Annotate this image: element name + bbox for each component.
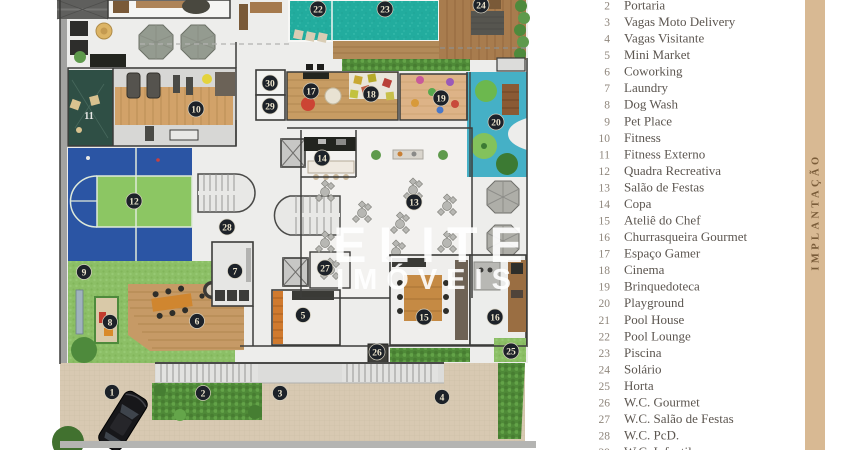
svg-text:Ateliê do Chef: Ateliê do Chef bbox=[624, 213, 701, 228]
svg-text:12: 12 bbox=[129, 197, 139, 207]
svg-text:3: 3 bbox=[604, 17, 610, 29]
svg-text:Cinema: Cinema bbox=[624, 262, 665, 277]
svg-text:20: 20 bbox=[599, 298, 611, 310]
svg-text:W.C. Gourmet: W.C. Gourmet bbox=[624, 395, 700, 410]
svg-text:6: 6 bbox=[604, 67, 610, 79]
svg-text:8: 8 bbox=[108, 318, 113, 328]
svg-text:24: 24 bbox=[476, 1, 486, 11]
svg-text:16: 16 bbox=[599, 232, 611, 244]
svg-text:Piscina: Piscina bbox=[624, 345, 662, 360]
svg-text:Brinquedoteca: Brinquedoteca bbox=[624, 279, 700, 294]
svg-text:Churrasqueira Gourmet: Churrasqueira Gourmet bbox=[624, 229, 747, 244]
svg-text:3: 3 bbox=[278, 389, 283, 399]
svg-text:Vagas Visitante: Vagas Visitante bbox=[624, 31, 704, 46]
svg-text:13: 13 bbox=[599, 182, 611, 194]
svg-text:Vagas Moto Delivery: Vagas Moto Delivery bbox=[624, 14, 736, 29]
svg-text:23: 23 bbox=[599, 348, 611, 360]
svg-text:11: 11 bbox=[599, 149, 610, 161]
svg-text:1: 1 bbox=[110, 388, 115, 398]
svg-text:26: 26 bbox=[372, 348, 382, 358]
svg-text:4: 4 bbox=[604, 34, 610, 46]
svg-text:16: 16 bbox=[490, 313, 500, 323]
svg-text:Coworking: Coworking bbox=[624, 64, 683, 79]
svg-text:27: 27 bbox=[599, 414, 611, 426]
svg-text:11: 11 bbox=[84, 111, 93, 122]
svg-text:14: 14 bbox=[599, 199, 611, 211]
svg-text:Pool Lounge: Pool Lounge bbox=[624, 328, 691, 343]
svg-text:Copa: Copa bbox=[624, 196, 652, 211]
svg-text:Fitness: Fitness bbox=[624, 130, 661, 145]
svg-text:Salão de Festas: Salão de Festas bbox=[624, 179, 704, 194]
svg-text:12: 12 bbox=[599, 166, 611, 178]
svg-text:25: 25 bbox=[506, 347, 516, 357]
svg-text:15: 15 bbox=[599, 216, 611, 228]
svg-text:23: 23 bbox=[380, 5, 390, 15]
svg-text:2: 2 bbox=[201, 389, 206, 399]
svg-text:2: 2 bbox=[604, 1, 610, 13]
svg-text:9: 9 bbox=[604, 116, 610, 128]
svg-text:W.C. Salão de Festas: W.C. Salão de Festas bbox=[624, 411, 734, 426]
svg-text:22: 22 bbox=[599, 331, 611, 343]
svg-text:Solário: Solário bbox=[624, 361, 662, 376]
svg-text:25: 25 bbox=[599, 381, 611, 393]
svg-text:Playground: Playground bbox=[624, 295, 684, 310]
svg-text:5: 5 bbox=[604, 50, 610, 62]
svg-text:Portaria: Portaria bbox=[624, 0, 665, 13]
svg-text:18: 18 bbox=[366, 90, 376, 100]
svg-text:7: 7 bbox=[604, 83, 610, 95]
svg-text:Pet Place: Pet Place bbox=[624, 113, 672, 128]
svg-text:17: 17 bbox=[306, 87, 316, 97]
svg-text:29: 29 bbox=[265, 102, 275, 112]
svg-text:Horta: Horta bbox=[624, 378, 654, 393]
svg-text:24: 24 bbox=[599, 364, 611, 376]
svg-text:28: 28 bbox=[222, 223, 232, 233]
svg-text:Pool House: Pool House bbox=[624, 312, 685, 327]
svg-text:13: 13 bbox=[409, 198, 419, 208]
svg-text:19: 19 bbox=[599, 282, 611, 294]
svg-text:19: 19 bbox=[436, 94, 446, 104]
svg-text:26: 26 bbox=[599, 398, 611, 410]
svg-text:15: 15 bbox=[419, 313, 429, 323]
svg-text:IMPLANTAÇÃO: IMPLANTAÇÃO bbox=[810, 153, 822, 270]
svg-text:Espaço Gamer: Espaço Gamer bbox=[624, 246, 701, 261]
svg-text:30: 30 bbox=[265, 79, 275, 89]
svg-text:14: 14 bbox=[317, 154, 327, 164]
svg-text:27: 27 bbox=[320, 264, 330, 274]
svg-text:10: 10 bbox=[191, 105, 201, 115]
svg-text:Quadra Recreativa: Quadra Recreativa bbox=[624, 163, 721, 178]
svg-text:10: 10 bbox=[599, 133, 611, 145]
svg-text:6: 6 bbox=[195, 317, 200, 327]
svg-text:22: 22 bbox=[313, 5, 323, 15]
svg-text:20: 20 bbox=[491, 118, 501, 128]
svg-text:28: 28 bbox=[599, 431, 611, 443]
svg-text:21: 21 bbox=[599, 315, 611, 327]
svg-text:W.C. Infantil: W.C. Infantil bbox=[624, 444, 692, 450]
svg-text:4: 4 bbox=[440, 393, 445, 403]
svg-text:W.C. PcD.: W.C. PcD. bbox=[624, 428, 679, 443]
svg-text:8: 8 bbox=[604, 100, 610, 112]
svg-text:9: 9 bbox=[82, 268, 87, 278]
svg-text:Dog Wash: Dog Wash bbox=[624, 97, 678, 112]
svg-text:Fitness Externo: Fitness Externo bbox=[624, 146, 705, 161]
svg-text:7: 7 bbox=[233, 267, 238, 277]
svg-text:18: 18 bbox=[599, 265, 611, 277]
svg-text:5: 5 bbox=[301, 311, 306, 321]
svg-text:Mini Market: Mini Market bbox=[624, 47, 690, 62]
svg-text:Laundry: Laundry bbox=[624, 80, 669, 95]
svg-text:17: 17 bbox=[599, 249, 611, 261]
svg-text:IMÓVEIS: IMÓVEIS bbox=[336, 262, 520, 296]
